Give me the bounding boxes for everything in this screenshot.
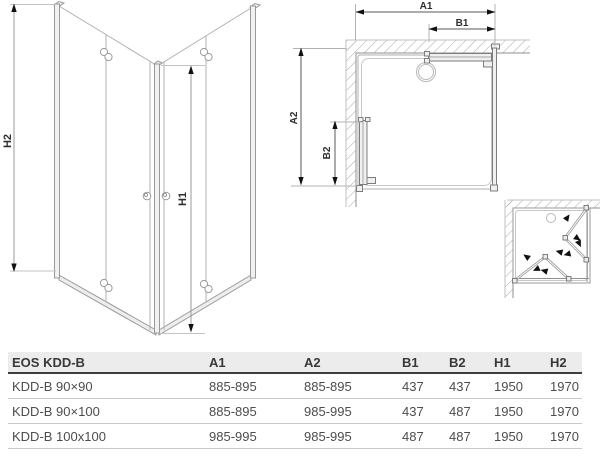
drain-icon xyxy=(417,63,436,82)
a1-cell: 885-895 xyxy=(205,399,300,424)
b1-cell: 487 xyxy=(398,424,445,449)
spec-sheet: H2 H1 xyxy=(0,0,605,465)
column-header-b2: B2 xyxy=(445,352,490,373)
h1-cell: 1950 xyxy=(490,424,546,449)
a1-cell: 985-995 xyxy=(205,424,300,449)
a2-cell: 885-895 xyxy=(300,373,398,399)
b2-cell: 487 xyxy=(445,424,490,449)
a2-cell: 985-995 xyxy=(300,424,398,449)
table-row: KDD-B 100x100 985-995 985-995 487 487 19… xyxy=(8,424,582,449)
shower-tray xyxy=(358,55,495,189)
a1-dimension-label: A1 xyxy=(420,1,433,12)
h2-cell: 1970 xyxy=(546,399,582,424)
a1-cell: 885-895 xyxy=(205,373,300,399)
b2-cell: 487 xyxy=(445,399,490,424)
b2-dimension-label: B2 xyxy=(322,146,333,159)
model-cell: KDD-B 90×90 xyxy=(8,373,205,399)
drain-icon xyxy=(547,214,556,223)
a2-cell: 985-995 xyxy=(300,399,398,424)
h1-cell: 1950 xyxy=(490,373,546,399)
b1-cell: 437 xyxy=(398,399,445,424)
glass-top-edges xyxy=(59,6,251,65)
top-door-profile xyxy=(425,52,493,68)
table-header-row: EOS KDD-B A1 A2 B1 B2 H1 H2 xyxy=(8,352,582,373)
a2-dimension-label: A2 xyxy=(289,111,300,124)
h1-dimension-label: H1 xyxy=(177,192,189,206)
plan-view-diagram: A1 B1 A2 B2 xyxy=(288,0,605,215)
table-row: KDD-B 90×90 885-895 885-895 437 437 1950… xyxy=(8,373,582,399)
b1-dimension-label: B1 xyxy=(456,18,469,29)
model-cell: KDD-B 90×100 xyxy=(8,399,205,424)
b2-cell: 437 xyxy=(445,373,490,399)
h2-dimension-label: H2 xyxy=(2,134,14,148)
b1-dimension: B1 xyxy=(429,18,496,42)
corner-post xyxy=(154,61,162,333)
b1-cell: 437 xyxy=(398,373,445,399)
table-row: KDD-B 90×100 885-895 985-995 437 487 195… xyxy=(8,399,582,424)
corner-open-view-diagram xyxy=(480,193,605,315)
column-header-model: EOS KDD-B xyxy=(8,352,205,373)
left-door-profile xyxy=(357,118,376,192)
h2-dimension: H2 xyxy=(2,4,56,273)
a1-dimension: A1 xyxy=(356,1,496,46)
column-header-h1: H1 xyxy=(490,352,546,373)
h1-cell: 1950 xyxy=(490,399,546,424)
perspective-view-diagram: H2 H1 xyxy=(0,0,290,345)
column-header-b1: B1 xyxy=(398,352,445,373)
column-header-h2: H2 xyxy=(546,352,582,373)
h2-cell: 1970 xyxy=(546,424,582,449)
column-header-a2: A2 xyxy=(300,352,398,373)
column-header-a1: A1 xyxy=(205,352,300,373)
h2-cell: 1970 xyxy=(546,373,582,399)
dimension-table: EOS KDD-B A1 A2 B1 B2 H1 H2 KDD-B 90×90 … xyxy=(8,352,582,449)
model-cell: KDD-B 100x100 xyxy=(8,424,205,449)
